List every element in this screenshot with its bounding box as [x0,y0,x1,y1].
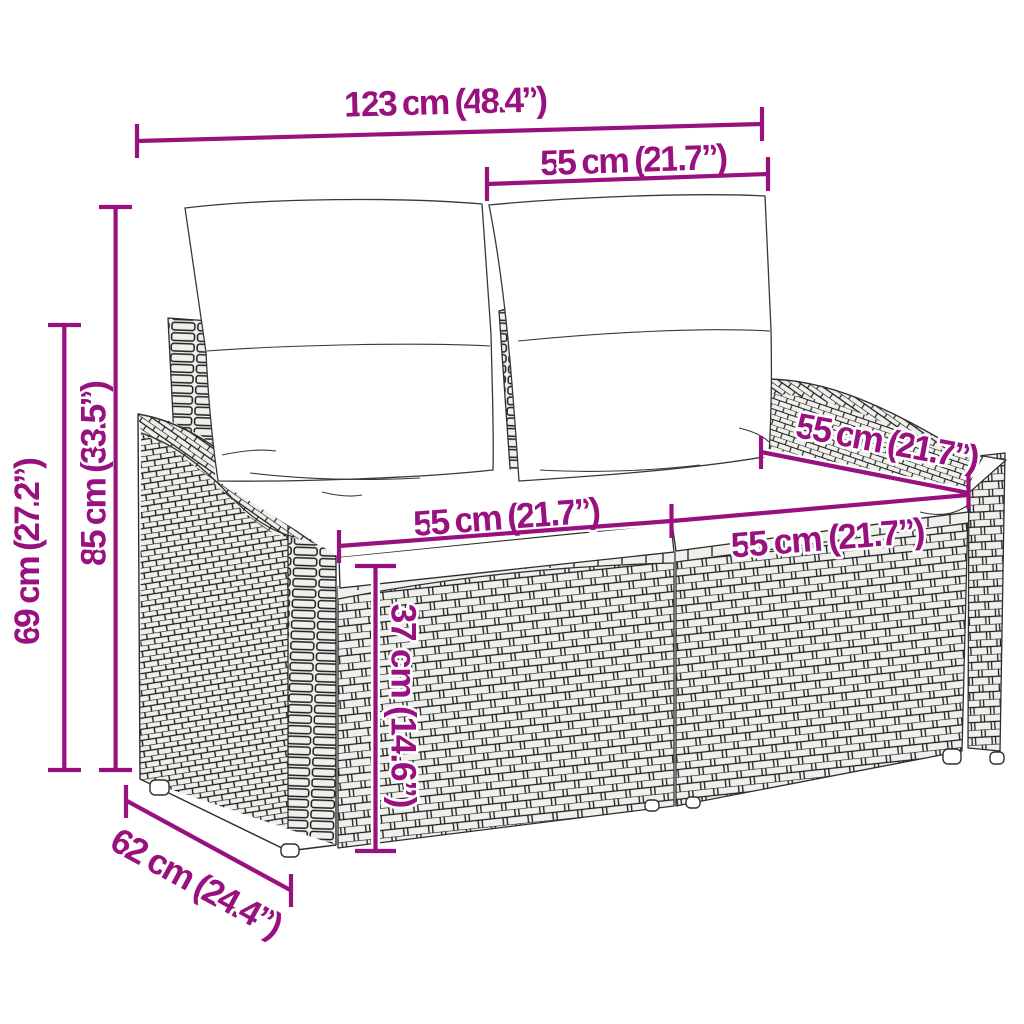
svg-text:69 cm (27.2”): 69 cm (27.2”) [7,457,47,645]
svg-text:123 cm (48.4”): 123 cm (48.4”) [344,79,549,124]
svg-text:85 cm (33.5”): 85 cm (33.5”) [74,380,114,566]
svg-text:37 cm (14.6”): 37 cm (14.6”) [384,604,424,809]
